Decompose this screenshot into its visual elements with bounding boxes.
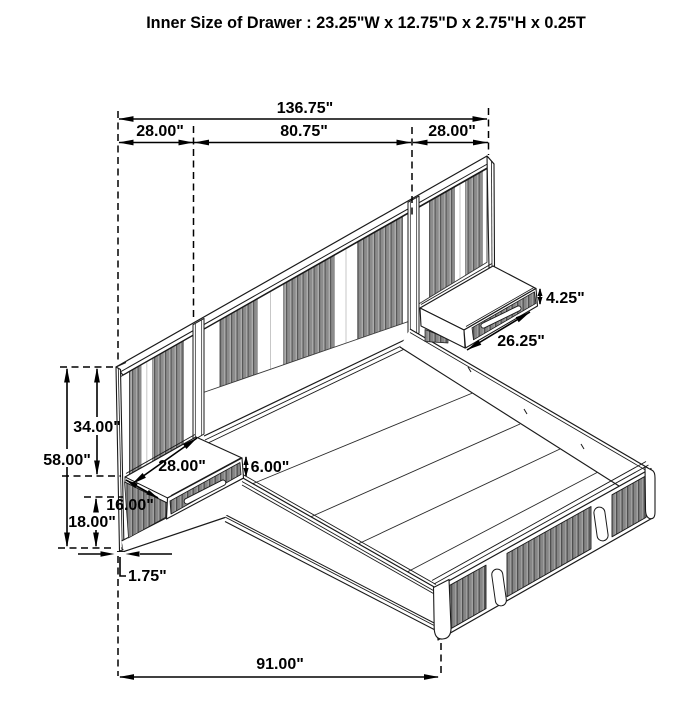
svg-text:80.75": 80.75" — [280, 123, 328, 140]
svg-text:28.00": 28.00" — [428, 123, 476, 140]
svg-text:28.00": 28.00" — [158, 458, 206, 475]
svg-text:91.00": 91.00" — [256, 656, 304, 673]
svg-text:18.00": 18.00" — [68, 514, 116, 531]
svg-text:28.00": 28.00" — [136, 123, 184, 140]
svg-text:1.75": 1.75" — [128, 568, 167, 585]
svg-text:6.00": 6.00" — [251, 459, 290, 476]
svg-text:26.25": 26.25" — [497, 333, 545, 350]
svg-text:4.25": 4.25" — [546, 290, 585, 307]
svg-text:16.00": 16.00" — [106, 497, 154, 514]
svg-text:58.00": 58.00" — [43, 452, 91, 469]
svg-text:34.00": 34.00" — [73, 419, 121, 436]
svg-text:136.75": 136.75" — [277, 100, 334, 117]
svg-text:Inner Size of Drawer : 23.25"W: Inner Size of Drawer : 23.25"W x 12.75"D… — [146, 14, 586, 32]
